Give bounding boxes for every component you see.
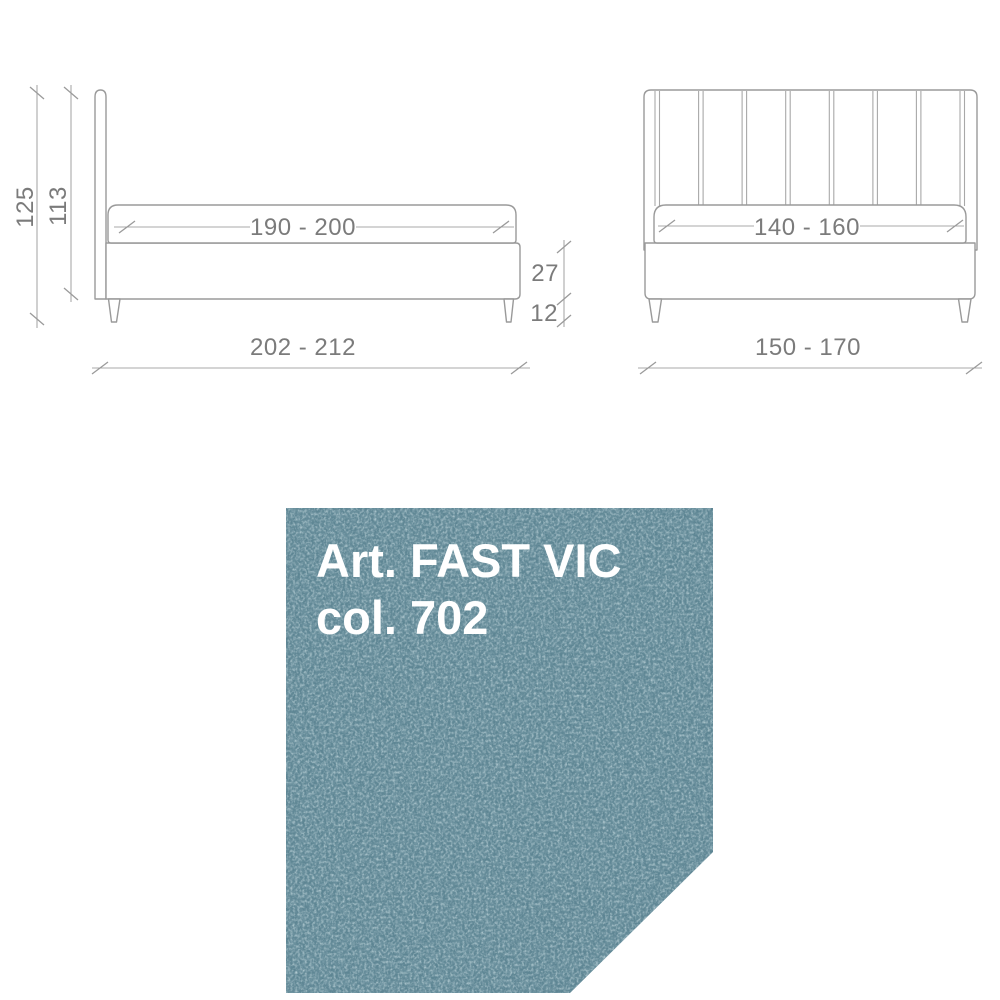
dim-label-mattress-width: 140 - 160 xyxy=(754,214,860,241)
front-frame xyxy=(645,243,975,299)
front-left-leg xyxy=(649,299,662,322)
side-headboard xyxy=(95,90,106,299)
side-frame xyxy=(106,243,520,299)
fabric-article-name: Art. FAST VIC xyxy=(316,532,622,589)
bed-front-view: 140 - 160 150 - 170 xyxy=(638,90,982,374)
dim-total-height: 125 xyxy=(12,85,44,328)
dim-total-width: 150 - 170 xyxy=(638,334,982,374)
side-front-leg xyxy=(109,299,121,322)
dim-label-leg-height: 12 xyxy=(530,300,558,327)
technical-drawing: 125 113 190 - 200 xyxy=(0,0,1000,400)
dim-label-mattress-length: 190 - 200 xyxy=(250,214,356,241)
dim-label-frame-height: 27 xyxy=(531,260,559,287)
dim-frame-and-leg-height: 27 12 xyxy=(530,240,571,327)
front-right-leg xyxy=(959,299,972,322)
bed-side-view: 125 113 190 - 200 xyxy=(12,85,571,374)
dim-label-total-height: 125 xyxy=(12,186,39,228)
dim-label-total-width: 150 - 170 xyxy=(755,334,861,361)
fabric-swatch: Art. FAST VIC col. 702 xyxy=(286,508,713,993)
side-rear-leg xyxy=(504,299,514,322)
dim-label-total-length: 202 - 212 xyxy=(250,334,356,361)
dim-headboard-height: 113 xyxy=(45,85,78,302)
dim-total-length: 202 - 212 xyxy=(92,334,530,374)
dim-label-headboard-height: 113 xyxy=(45,186,72,226)
fabric-label: Art. FAST VIC col. 702 xyxy=(316,532,622,646)
product-spec-sheet: 125 113 190 - 200 xyxy=(0,0,1000,1000)
fabric-color-code: col. 702 xyxy=(316,589,622,646)
